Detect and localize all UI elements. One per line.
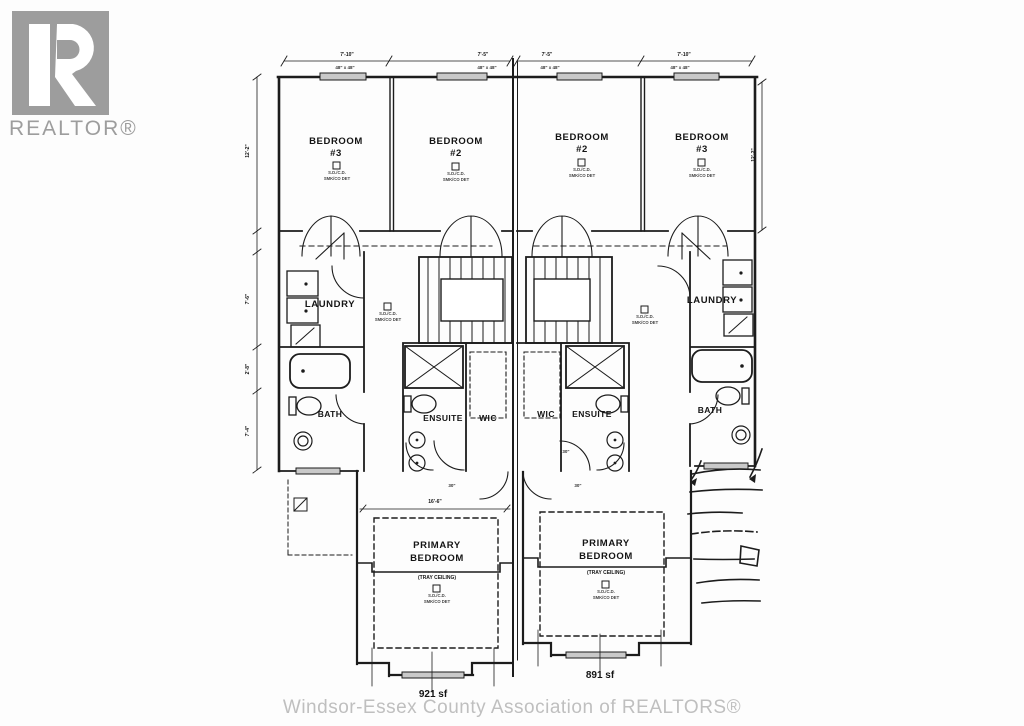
room-label-bedroom2-right: BEDROOM [555, 132, 609, 143]
floorplan-linework [0, 0, 1024, 726]
floorplan-page: REALTOR® [0, 0, 1024, 726]
detector-note: S.D./C.D. [597, 590, 615, 595]
room-label-ensuite-left: ENSUITE [423, 413, 463, 423]
detector-note: S.D./C.D. [379, 312, 397, 317]
detector-note: SMK/CO DET [569, 174, 595, 179]
room-label-ensuite-right: ENSUITE [572, 409, 612, 419]
detector-note: S.D./C.D. [693, 168, 711, 173]
dim-top-3: 7'-5" [542, 52, 553, 58]
door-size-label-2: 30" [574, 483, 581, 488]
room-label-bedroom3-right: BEDROOM [675, 132, 729, 143]
detector-note: SMK/CO DET [689, 174, 715, 179]
dim-left-1: 12'-2" [245, 144, 251, 158]
dim-top-4: 7'-10" [677, 52, 691, 58]
window-size-label-4: 48" x 48" [670, 65, 689, 70]
footer-credit: Windsor-Essex County Association of REAL… [283, 697, 741, 719]
detector-note: SMK/CO DET [632, 321, 658, 326]
window-size-label-3: 48" x 48" [540, 65, 559, 70]
dim-left-3: 2'-8" [245, 364, 251, 375]
door-size-label-1: 30" [562, 449, 569, 454]
area-label-right: 891 sf [586, 670, 614, 681]
dim-top-1: 7'-10" [340, 52, 354, 58]
detector-note: S.D./C.D. [428, 594, 446, 599]
dim-top-2: 7'-5" [478, 52, 489, 58]
detector-note: SMK/CO DET [424, 600, 450, 605]
door-size-label-3: 30" [448, 483, 455, 488]
window-size-label-1: 48" x 48" [335, 65, 354, 70]
dim-right-1: 12'-2" [751, 148, 757, 162]
room-label-bedroom3-left: BEDROOM [309, 136, 363, 147]
room-label-laundry-right: LAUNDRY [687, 295, 737, 306]
detector-note: S.D./C.D. [636, 315, 654, 320]
window-size-label-2: 48" x 48" [477, 65, 496, 70]
dim-left-4: 7'-4" [245, 426, 251, 437]
room-label-primary-right-2: BEDROOM [579, 551, 633, 562]
dim-primary-width: 16'-6" [428, 499, 442, 505]
tray-ceiling-note-right: (TRAY CEILING) [587, 570, 625, 576]
detector-note: SMK/CO DET [443, 178, 469, 183]
detector-note: S.D./C.D. [573, 168, 591, 173]
room-label-laundry-left: LAUNDRY [305, 299, 355, 310]
room-label-primary-right-1: PRIMARY [582, 538, 630, 549]
detector-note: S.D./C.D. [447, 172, 465, 177]
room-label-bedroom2-left-num: #2 [450, 148, 462, 159]
room-label-primary-left-2: BEDROOM [410, 553, 464, 564]
room-label-bedroom3-left-num: #3 [330, 148, 342, 159]
room-label-wic-right: WIC [537, 409, 555, 419]
room-label-wic-left: WIC [479, 413, 497, 423]
room-label-bedroom2-right-num: #2 [576, 144, 588, 155]
dim-left-2: 7'-6" [245, 294, 251, 305]
room-label-primary-left-1: PRIMARY [413, 540, 461, 551]
room-label-bath-right: BATH [698, 405, 723, 415]
detector-note: SMK/CO DET [375, 318, 401, 323]
detector-note: S.D./C.D. [328, 171, 346, 176]
room-label-bath-left: BATH [318, 409, 343, 419]
detector-note: SMK/CO DET [593, 596, 619, 601]
room-label-bedroom3-right-num: #3 [696, 144, 708, 155]
room-label-bedroom2-left: BEDROOM [429, 136, 483, 147]
tray-ceiling-note-left: (TRAY CEILING) [418, 575, 456, 581]
detector-note: SMK/CO DET [324, 177, 350, 182]
